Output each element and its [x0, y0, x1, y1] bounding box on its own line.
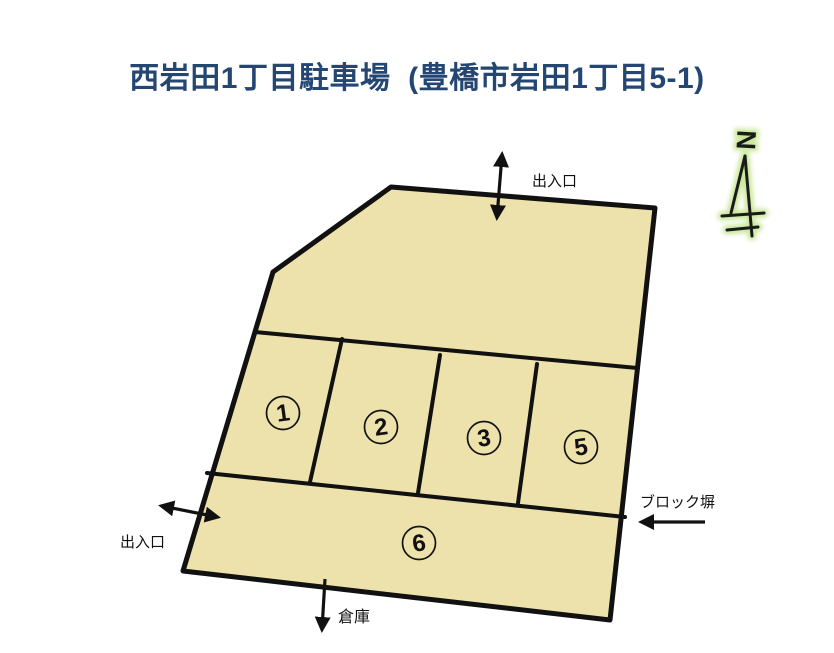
north-arrow-icon: N N — [722, 129, 764, 236]
top-entrance-label: 出入口 — [532, 173, 577, 190]
north-letter: N — [731, 129, 762, 150]
parking-lot-diagram: 1 2 3 5 6 — [0, 0, 834, 653]
parking-map-page: 西岩田1丁目駐車場 (豊橋市岩田1丁目5-1) 1 — [0, 0, 834, 653]
warehouse-label: 倉庫 — [338, 608, 370, 626]
left-entrance-label: 出入口 — [120, 534, 165, 551]
block-wall-label: ブロック塀 — [640, 493, 715, 511]
